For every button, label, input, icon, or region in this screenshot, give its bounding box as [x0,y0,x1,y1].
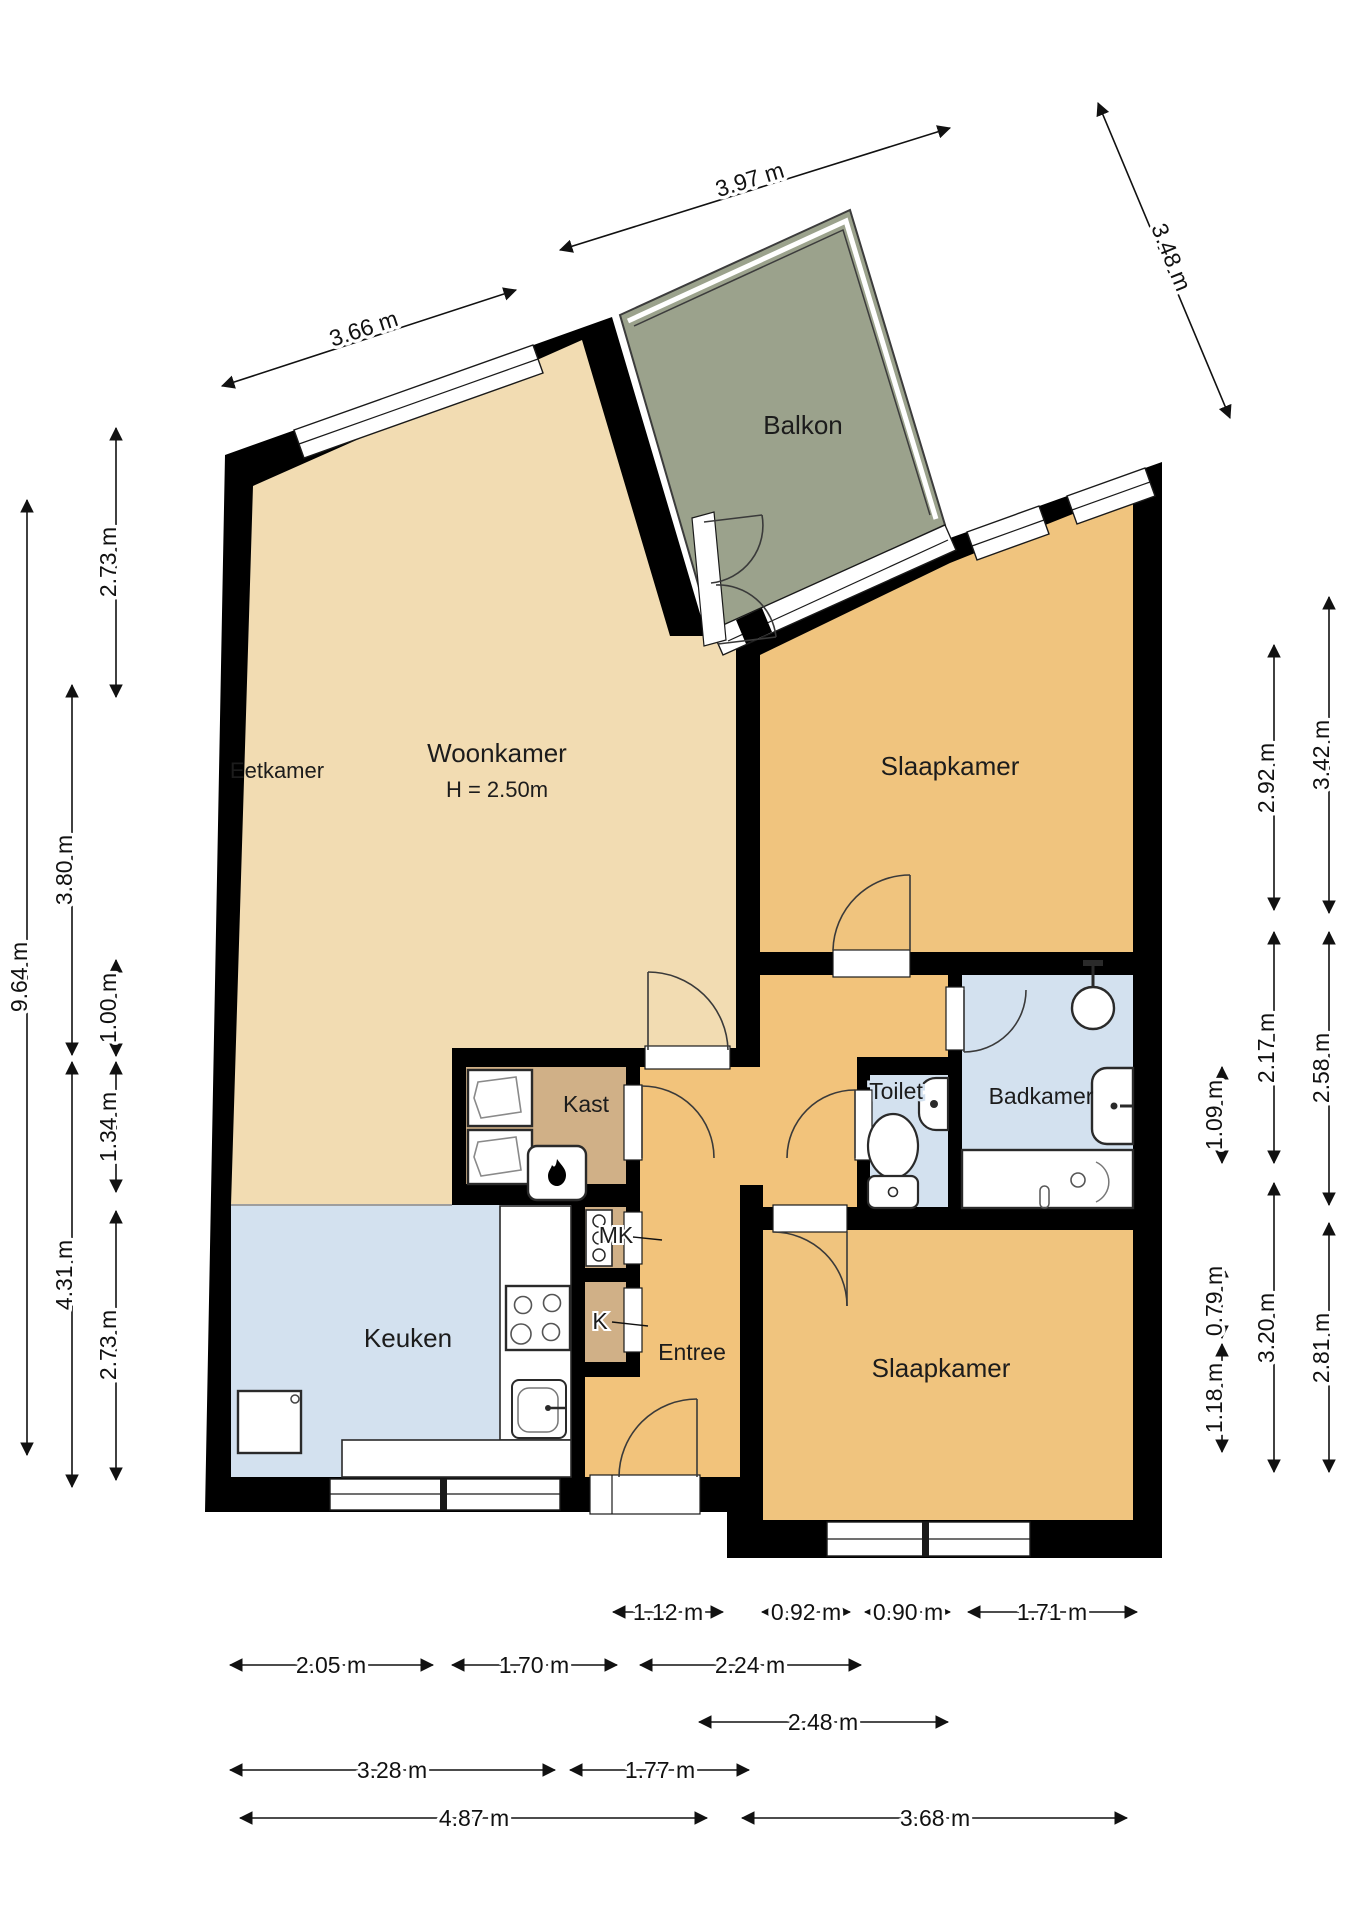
dim-label: 3.68 m [900,1805,970,1831]
dim-right-1-18: 1.18 m [1201,1344,1227,1452]
dim-right-2-58: 2.58 m [1308,932,1334,1205]
dim-bottom-3-68: 3.68 m [742,1805,1127,1831]
dim-label: 3.80 m [51,835,77,905]
dim-bottom-0-92: 0.92 m [762,1599,850,1625]
window-mullion [922,1522,929,1556]
dim-label: 3.97 m [712,157,787,202]
toilet-cistern-icon [868,1176,918,1208]
door-entree-sill [590,1475,700,1514]
door-slaapkamer-2-sill [773,1205,847,1232]
label-toilet: Toilet [869,1078,923,1104]
kitchen-counter [342,1440,571,1477]
dim-label: 1.12 m [633,1599,703,1625]
dim-label: 0.90 m [873,1599,943,1625]
dim-bottom-2-05: 2.05 m [230,1652,433,1678]
dim-label: 1.77 m [625,1757,695,1783]
label-keuken: Keuken [364,1323,452,1353]
dim-label: 2.48 m [788,1709,858,1735]
dim-label: 3.28 m [357,1757,427,1783]
dim-left-2-73-top: 2.73 m [95,428,121,697]
dim-bottom-1-12: 1.12 m [613,1599,723,1625]
dim-label: 0.79 m [1201,1266,1227,1336]
floor-plan-canvas: Woonkamer H = 2.50m Eetkamer Balkon Slaa… [0,0,1358,1920]
shower-icon [1072,987,1114,1029]
label-kast: Kast [563,1091,610,1117]
dim-left-3-80: 3.80 m [51,685,77,1055]
dim-label: 1.71 m [1017,1599,1087,1625]
dim-label: 1.09 m [1201,1080,1227,1150]
door-k-sill [624,1288,642,1352]
dim-top-3-48: 3.48 m [1098,103,1230,418]
dim-label: 2.92 m [1253,743,1279,813]
dim-bottom-1-71: 1.71 m [968,1599,1137,1625]
dim-left-9-64: 9.64 m [6,500,32,1455]
dim-label: 3.42 m [1308,720,1334,790]
dim-label: 2.81 m [1308,1313,1334,1383]
dim-label: 0.92 m [771,1599,841,1625]
dim-label: 2.05 m [296,1652,366,1678]
bathtub-icon [962,1150,1133,1208]
dim-label: 2.24 m [715,1652,785,1678]
dim-label: 9.64 m [6,942,32,1012]
dim-top-3-97: 3.97 m [560,128,950,250]
tap-icon [1111,1103,1118,1110]
dim-right-2-81: 2.81 m [1308,1223,1334,1472]
label-eetkamer: Eetkamer [230,758,324,783]
dim-right-2-92: 2.92 m [1253,645,1279,910]
dim-bottom-1-77: 1.77 m [570,1757,749,1783]
dim-bottom-4-87: 4.87 m [240,1805,707,1831]
window-mullion [440,1479,447,1510]
dim-right-1-09: 1.09 m [1201,1067,1227,1163]
dim-left-1-34: 1.34 m [95,1062,121,1192]
dim-left-4-31: 4.31 m [51,1062,77,1487]
label-woonkamer-height: H = 2.50m [446,777,548,802]
toilet-icon [868,1114,918,1178]
dim-label: 4.87 m [439,1805,509,1831]
dim-bottom-0-90: 0.90 m [865,1599,950,1625]
dim-left-2-73-bottom: 2.73 m [95,1211,121,1480]
dim-label: 3.66 m [326,305,401,351]
label-entree: Entree [658,1339,726,1365]
stove-icon [506,1286,570,1350]
floor-plan-page: Woonkamer H = 2.50m Eetkamer Balkon Slaa… [0,0,1358,1920]
label-mk: MK [599,1222,634,1248]
dim-label: 1.00 m [95,973,121,1043]
tap-icon [545,1405,551,1411]
dim-label: 2.73 m [95,527,121,597]
dim-label: 2.58 m [1308,1033,1334,1103]
dim-right-3-20: 3.20 m [1253,1183,1279,1472]
dim-right-3-42: 3.42 m [1308,597,1334,913]
dim-right-2-17: 2.17 m [1253,932,1279,1163]
label-woonkamer: Woonkamer [427,738,567,768]
label-slaapkamer-2: Slaapkamer [872,1353,1011,1383]
dim-bottom-2-48: 2.48 m [699,1709,948,1735]
dim-label: 3.20 m [1253,1293,1279,1363]
dim-label: 2.17 m [1253,1013,1279,1083]
dim-label: 4.31 m [51,1240,77,1310]
label-badkamer: Badkamer [989,1083,1094,1109]
dim-right-0-79: 0.79 m [1201,1265,1227,1338]
dim-label: 1.70 m [499,1652,569,1678]
dim-bottom-2-24: 2.24 m [640,1652,861,1678]
door-badkamer-sill [946,987,964,1050]
label-k: K [592,1308,608,1334]
label-slaapkamer-1: Slaapkamer [881,751,1020,781]
dim-label: 3.48 m [1146,220,1196,295]
dim-bottom-1-70: 1.70 m [452,1652,617,1678]
dim-bottom-3-28: 3.28 m [230,1757,555,1783]
wardrobe-icon [468,1130,532,1184]
tap-icon [930,1100,938,1108]
dim-label: 1.18 m [1201,1363,1227,1433]
door-kast-sill [624,1085,642,1160]
door-slaapkamer-1-sill [833,950,910,977]
label-balkon: Balkon [763,410,843,440]
door-woonkamer-sill [645,1046,730,1069]
dim-left-1-00: 1.00 m [95,960,121,1056]
dim-label: 2.73 m [95,1310,121,1380]
dim-label: 1.34 m [95,1092,121,1162]
